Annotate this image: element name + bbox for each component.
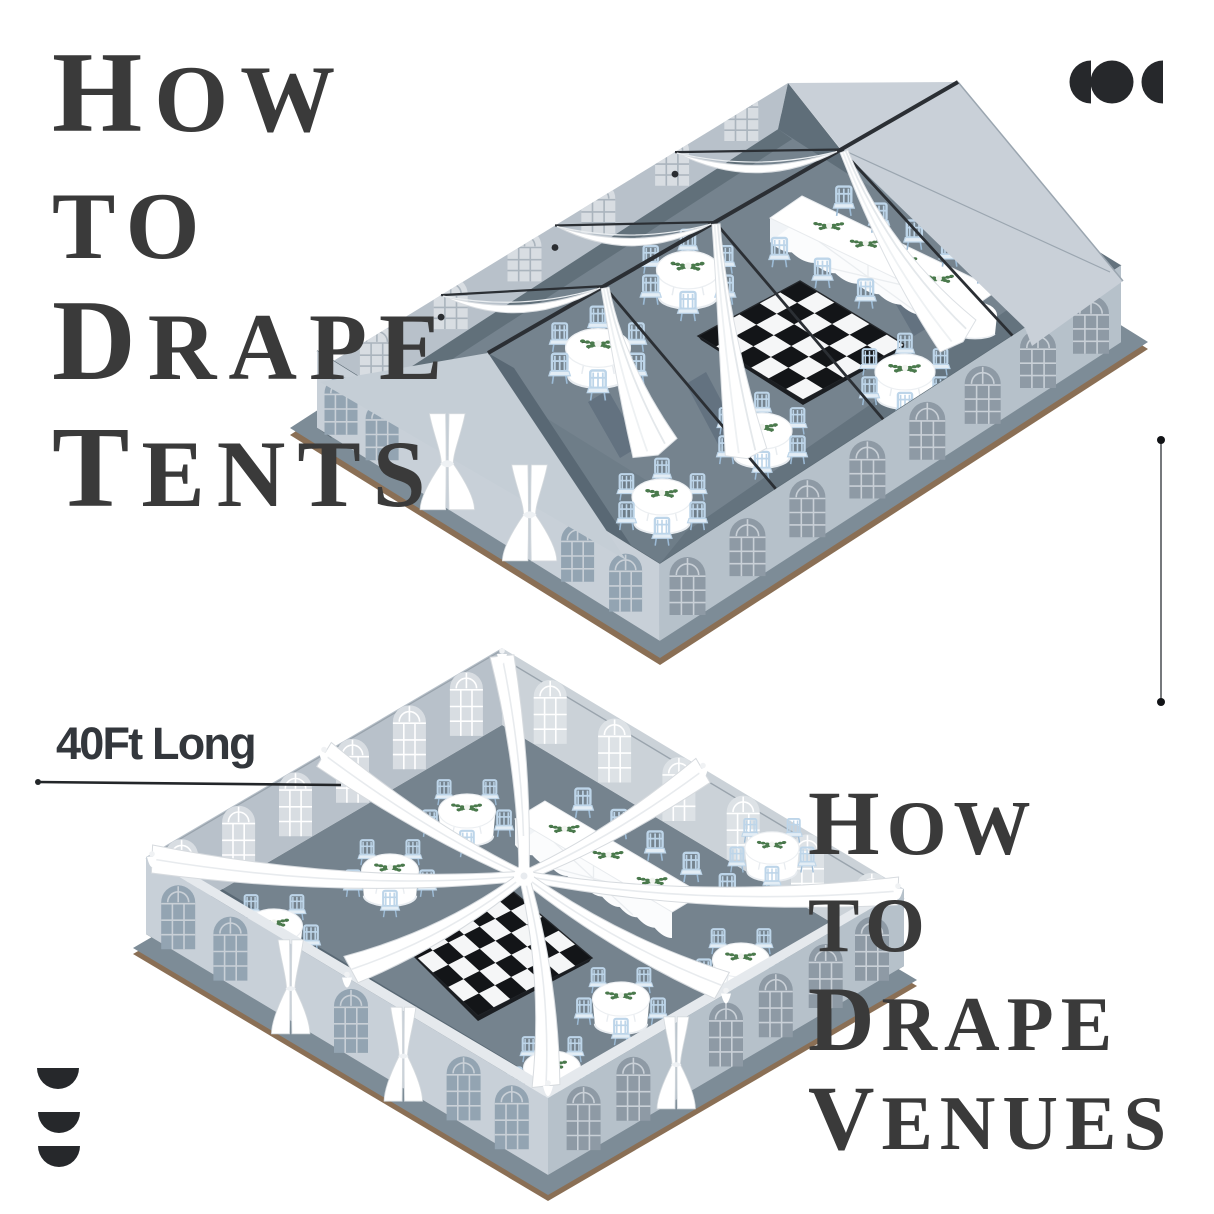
svg-text:40Ft Long: 40Ft Long <box>56 718 255 769</box>
